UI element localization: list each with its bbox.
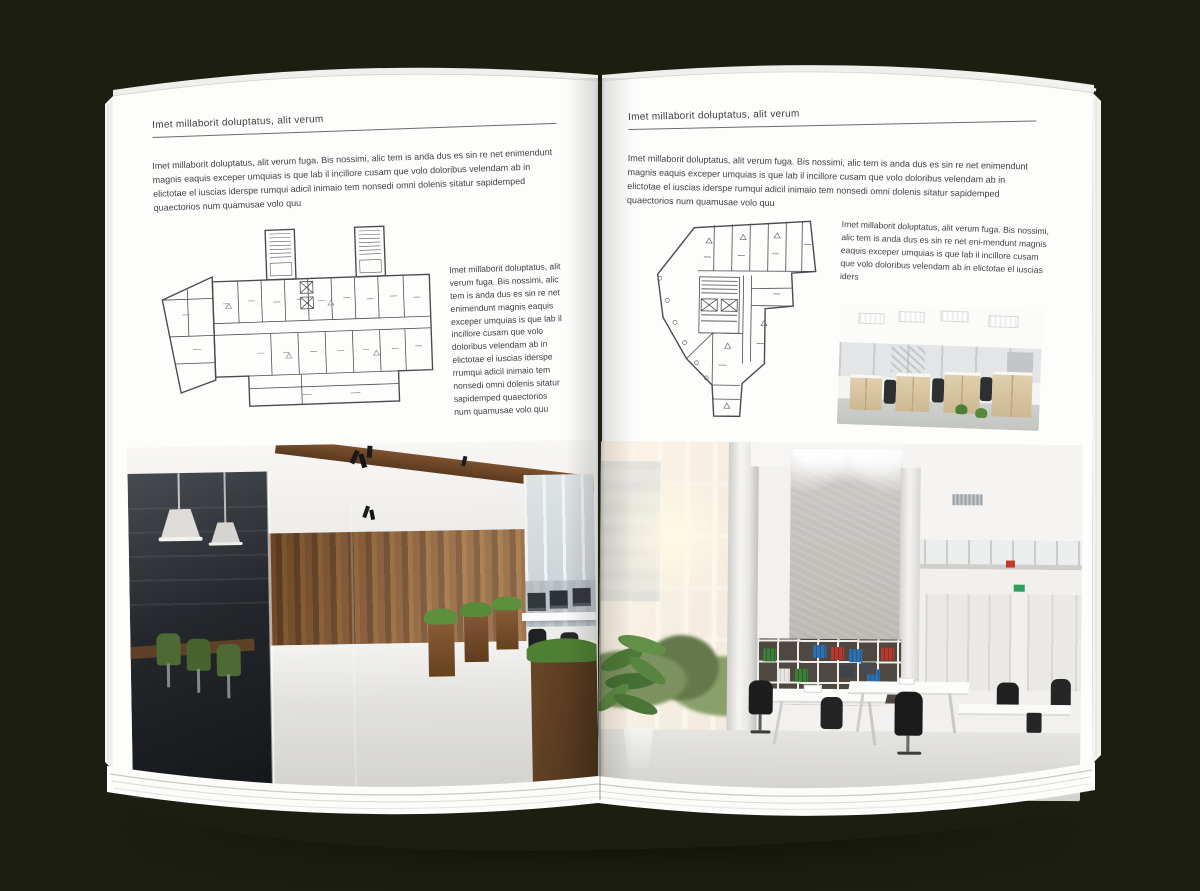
pendant-lamp-rim [209,542,243,546]
chair-post [167,663,170,687]
right-page: Imet millaborit doluptatus, alit verum I… [600,0,1200,891]
light-panel [940,310,968,322]
green-chair [216,644,241,676]
monitor [839,665,854,677]
right-page-title: Imet millaborit doluptatus, alit verum [628,103,1036,123]
binders-red [881,647,894,660]
green-chair [156,633,181,665]
light-panel [898,311,924,323]
office-chair [932,378,945,402]
safety-sign [1006,561,1015,568]
left-intro-paragraph: Imet millaborit doluptatus, alit verum f… [152,146,558,216]
left-floor-plan-drawing [150,216,448,416]
wood-planter [496,605,519,649]
wood-cabinet [895,373,930,412]
right-header-rule [628,120,1036,130]
right-floor-plan-drawing [639,212,837,420]
left-header-block: Imet millaborit doluptatus, alit verum [152,106,556,138]
air-vent [952,494,982,505]
wall-slats [128,506,270,618]
mezzanine-band [902,444,1083,545]
left-side-text: Imet millaborit doluptatus, alit verum f… [449,260,566,419]
binders-blue [813,645,826,658]
right-floor-plan [639,212,837,420]
chair-post [197,669,200,693]
green-chair [186,639,211,671]
wood-planter [428,618,455,676]
binders-green [763,648,776,661]
papers [804,685,822,693]
exit-sign [1014,585,1025,592]
right-header-block: Imet millaborit doluptatus, alit verum [628,103,1036,130]
left-photo-office-dark [127,440,599,798]
office-chair [749,680,773,714]
downlight-glow [790,449,903,514]
light-panel [988,315,1018,328]
wood-cabinet [991,371,1033,417]
binders-green [795,669,808,682]
binders-blue [849,649,862,662]
office-chair [884,380,897,404]
desk [958,704,1072,716]
wood-cabinet [849,374,882,410]
stair-hint [891,346,926,373]
binders-red [831,647,844,660]
chair-stem [906,736,909,752]
waste-bin [1026,713,1041,733]
right-intro-paragraph: Imet millaborit doluptatus, alit verum f… [627,152,1038,216]
track-spotlight [367,446,373,458]
right-photo-office-large [598,441,1083,801]
wood-planter [464,612,489,662]
polished-floor [598,729,1081,801]
right-photo-office-small [837,304,1043,431]
binders-white [777,669,790,682]
small-plant [955,404,967,414]
small-plant [975,408,987,418]
left-page: Imet millaborit doluptatus, alit verum I… [0,0,600,891]
planter-grass [424,608,458,625]
monitor [861,662,876,674]
planter-grass [492,596,522,611]
papers [899,678,915,685]
chair-stem [758,714,761,730]
chair-base [750,730,770,733]
monitor [528,593,546,611]
book-gutter [566,78,634,790]
pendant-lamp-rim [159,537,203,542]
office-chair [820,697,842,729]
office-chair [894,692,922,736]
planter-grass [460,602,492,618]
right-side-text: Imet millaborit doluptatus, alit verum f… [840,218,1050,290]
brochure-mockup: Imet millaborit doluptatus, alit verum I… [0,0,1200,891]
left-page-title: Imet millaborit doluptatus, alit verum [152,106,556,131]
cabinets [1027,595,1082,691]
left-floor-plan [150,216,448,416]
cabinets [925,594,1012,691]
office-chair [980,377,993,401]
light-panel [858,313,884,325]
chair-base [897,752,921,755]
chair-post [227,674,230,698]
